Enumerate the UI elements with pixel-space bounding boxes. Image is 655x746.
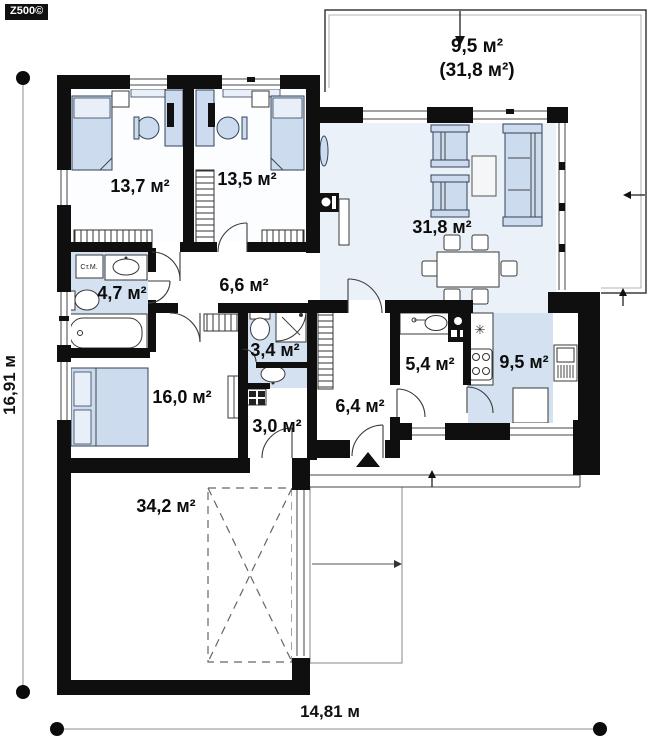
kitchen-sink-icon [400,313,450,334]
window-sill [131,89,166,97]
wardrobe-icon [318,309,333,389]
room-label-bedroom-2: 13,5 м² [217,169,276,189]
porch [310,470,580,487]
nightstand-icon [252,91,269,107]
armchair-icon [431,125,469,167]
terrace-arrow-right [623,191,645,199]
window-glazed-wall [556,123,568,290]
height-dimension-label: 16,91 м [0,355,19,415]
toilet-icon [250,311,270,340]
window [510,423,573,440]
stove-icon [469,349,492,380]
fridge-icon [554,345,577,381]
garage-door [292,488,310,658]
bathtub-icon [65,314,147,352]
washing-machine-label: Ст.М. [80,264,97,271]
wardrobe-icon [204,314,239,331]
entrance-marker [356,452,380,467]
armchair-icon [431,175,469,217]
z500-logo: Z500© [5,4,48,20]
kitchen-island-icon [513,388,548,423]
room-label-pantry: 5,4 м² [405,354,454,374]
bed-icon [71,368,148,446]
appliance-icon [247,389,266,405]
driveway [310,487,402,663]
window [222,75,280,89]
room-label-bathroom-1: 4,7 м² [97,283,146,303]
width-dimension-label: 14,81 м [300,702,360,721]
window [412,423,445,440]
wardrobe-icon [196,170,214,250]
floor-plan: Ст.М. [0,0,655,746]
nightstand-icon [112,91,129,107]
bed-icon [72,96,112,170]
terrace-area-label: 9,5 м² [451,36,503,57]
terrace-arrow-bottom [619,288,627,306]
window [57,362,71,420]
window [57,292,71,345]
sofa-icon [503,124,542,226]
room-label-entrance-hall: 6,4 м² [335,396,384,416]
room-label-kitchen: 9,5 м² [499,352,548,372]
window [57,170,71,205]
bed-icon [271,96,304,170]
room-label-bedroom-1: 13,7 м² [110,176,169,196]
room-label-utility: 3,0 м² [252,416,301,436]
terrace-total-label: (31,8 м²) [439,60,514,81]
dimension-line-horizontal [50,722,607,736]
window [473,107,547,123]
plant-icon [320,136,328,166]
sink-icon [105,255,147,280]
window [130,75,167,89]
room-label-bathroom-2: 3,4 м² [250,340,299,360]
room-label-hallway: 6,6 м² [219,275,268,295]
hob-symbol: ✳ [475,322,486,337]
washing-machine-icon: Ст.М. [76,255,103,278]
room-label-living-room: 31,8 м² [412,217,471,237]
room-label-garage: 34,2 м² [136,496,195,516]
shower-icon [276,311,306,342]
coffee-table-icon [472,156,496,196]
room-label-bedroom-3: 16,0 м² [152,387,211,407]
window [363,107,427,123]
